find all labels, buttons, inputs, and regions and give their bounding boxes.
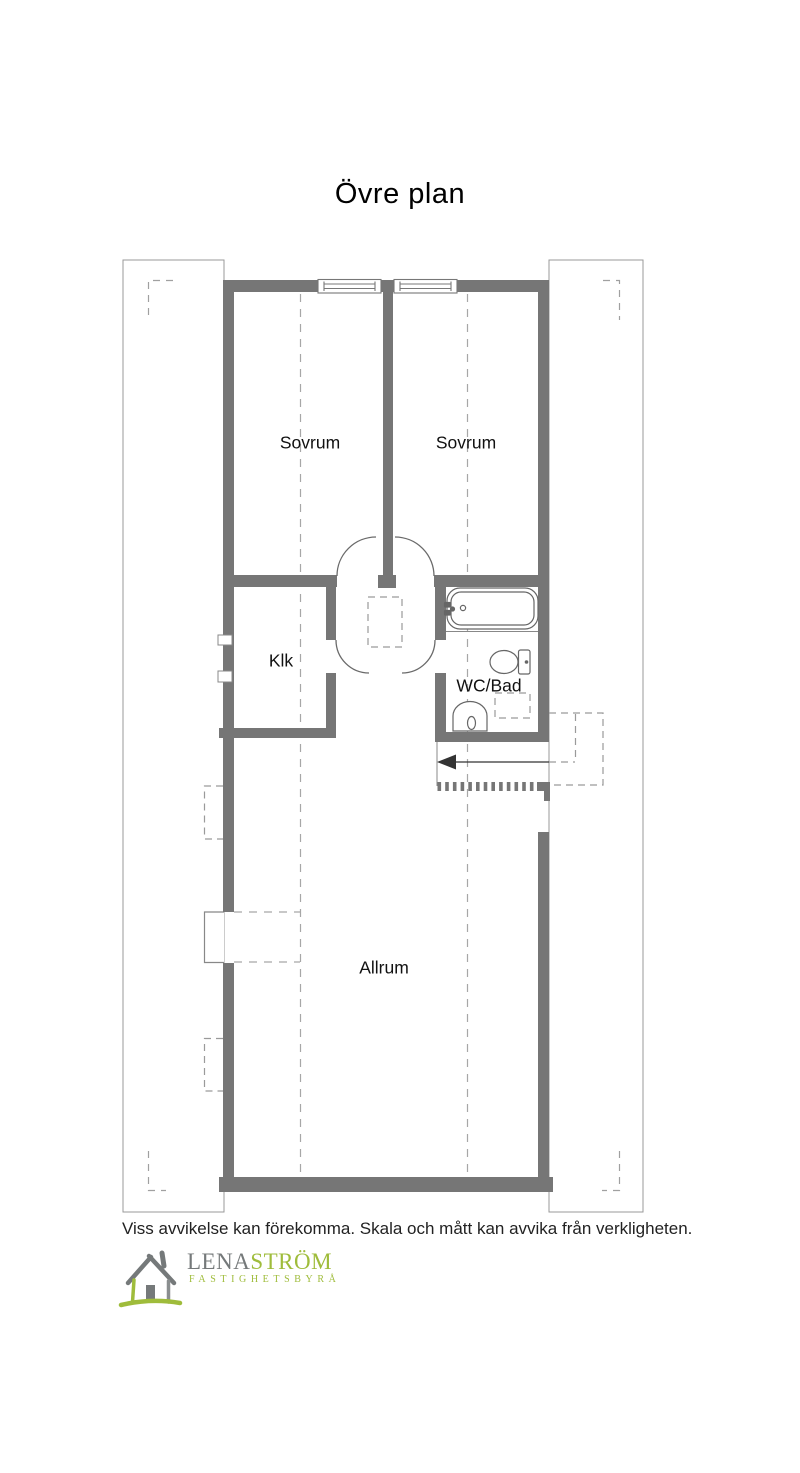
wall-klk-east-lower bbox=[326, 673, 336, 728]
wall-wc-west-lower bbox=[435, 673, 446, 742]
wall-klk-east-upper bbox=[326, 587, 336, 640]
wall-divider-foot bbox=[378, 575, 396, 588]
wall-wc-south bbox=[435, 732, 549, 742]
sink bbox=[453, 702, 487, 732]
logo-house-icon bbox=[121, 1253, 180, 1305]
wall-right-upper bbox=[538, 292, 549, 742]
bathtub bbox=[445, 588, 539, 629]
window-north-1 bbox=[318, 280, 381, 294]
floorplan-drawing bbox=[0, 0, 800, 1473]
room-label-klk: Klk bbox=[269, 651, 293, 672]
room-label-wc-bad: WC/Bad bbox=[456, 676, 521, 697]
window-north-2 bbox=[394, 280, 457, 294]
wall-top bbox=[223, 280, 549, 292]
right-roof-area bbox=[549, 260, 643, 1212]
logo-name-primary: LENA bbox=[187, 1249, 250, 1274]
stair-direction-arrow bbox=[437, 755, 549, 770]
bay-window bbox=[205, 912, 225, 963]
staircase bbox=[437, 742, 550, 801]
door-arc-bedroom2 bbox=[395, 537, 434, 576]
logo-wordmark: LENASTRÖM bbox=[187, 1249, 332, 1275]
wall-bedroom2-south bbox=[434, 575, 549, 587]
wall-left-lower bbox=[223, 963, 234, 1177]
disclaimer-text: Viss avvikelse kan förekomma. Skala och … bbox=[122, 1219, 692, 1239]
room-label-allrum: Allrum bbox=[359, 958, 409, 979]
wall-bottom bbox=[219, 1177, 553, 1192]
toilet bbox=[490, 650, 530, 674]
wall-bedroom1-south bbox=[223, 575, 337, 587]
logo-name-secondary: STRÖM bbox=[250, 1249, 332, 1274]
left-roof-area bbox=[123, 260, 224, 1212]
wall-right-lower bbox=[538, 832, 549, 1177]
chimney-outline bbox=[368, 597, 402, 647]
stair-wall-step bbox=[537, 782, 550, 801]
wall-klk-south bbox=[219, 728, 336, 738]
stair-break-teeth bbox=[438, 782, 534, 791]
room-label-sovrum-left: Sovrum bbox=[280, 433, 340, 454]
plan-title: Övre plan bbox=[0, 178, 800, 211]
walls bbox=[219, 280, 553, 1192]
door-arc-wc bbox=[402, 640, 435, 673]
wall-bedroom-divider bbox=[383, 292, 393, 575]
room-label-sovrum-right: Sovrum bbox=[436, 433, 496, 454]
logo-tagline: FASTIGHETSBYRÅ bbox=[189, 1274, 340, 1285]
wc-dashed-outline bbox=[495, 693, 530, 718]
door-arc-klk bbox=[336, 640, 369, 673]
floorplan-page: Övre plan Sovrum Sovrum Klk WC/Bad Allru… bbox=[0, 0, 800, 1473]
door-arc-bedroom1 bbox=[337, 537, 376, 576]
wall-left-upper bbox=[223, 292, 234, 912]
